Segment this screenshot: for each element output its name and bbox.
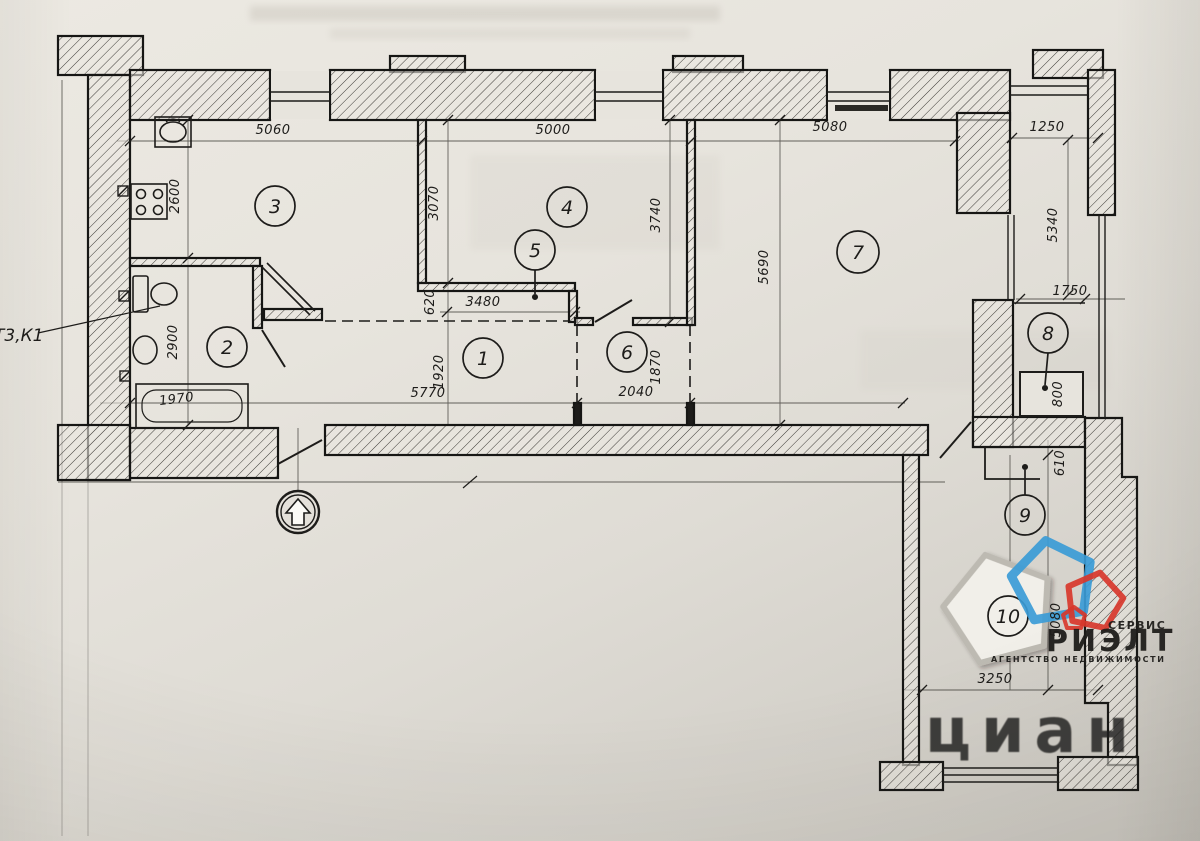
bathroom-door [262,330,285,367]
dim-bath-height: 2900 [166,324,181,359]
room-number: 10 [996,606,1020,628]
doors [262,300,971,488]
room-number: 5 [529,240,541,262]
dim-kitchen-top: 5060 [255,123,290,138]
room-label-6: 6 [607,332,647,372]
entry-arrow [277,491,319,533]
agency-logo: 10 СЕРВИС РИЭЛТ АГЕНТСТВО НЕДВИЖИМОСТИ [933,534,1175,669]
room6-door [595,300,632,322]
dim-hall-width: 5770 [410,386,445,401]
room-number: 2 [221,337,233,359]
room-label-7: 7 [837,231,879,273]
up-arrow-icon [286,499,310,525]
room-label-2: 2 [207,327,247,367]
stove [131,184,167,219]
room-number: 1 [477,348,489,370]
dim-kitchen-left: 2600 [168,178,183,213]
dim-room10-width: 3250 [977,672,1012,687]
dim-loggia-top: 1250 [1029,120,1064,135]
wash-basin [133,336,157,364]
room-number: 8 [1042,323,1054,345]
dim-room7-left: 5690 [757,249,772,284]
fixtures [118,117,248,428]
room-label-9: 9 [1005,465,1045,535]
room-label-3: 3 [255,186,295,226]
dim-niche-depth: 620 [423,289,438,315]
wall-mark-text: Т3,К1 [0,326,44,346]
room-number: 6 [621,342,633,364]
dim-room4-right: 3740 [649,197,664,232]
room-number: 3 [269,196,281,218]
logo-tagline-text: АГЕНТСТВО НЕДВИЖИМОСТИ [991,655,1166,664]
dim-bathtub: 1970 [158,390,195,409]
logo-brand-text: РИЭЛТ [1046,624,1176,659]
dim-room10-height: 5080 [1049,602,1064,637]
wing-door [940,422,971,458]
floor-plan-svg: циан 3 4 5 7 2 1 6 8 9 Т3,К1 10 [0,0,1200,841]
dim-hall-height: 1920 [432,354,447,389]
walls [58,36,1138,790]
room-label-1: 1 [463,338,503,378]
dim-niche-width: 3480 [465,295,500,310]
dim-loggia-right: 5340 [1046,207,1061,242]
dim-room6-width: 2040 [618,385,653,400]
scanned-floor-plan: циан 3 4 5 7 2 1 6 8 9 Т3,К1 10 [0,0,1200,841]
dim-room9-depth: 610 [1053,450,1068,476]
room-number: 4 [561,197,573,219]
room-number: 9 [1019,505,1031,527]
dim-room7-top: 5080 [812,120,847,135]
dashed-partitions [325,321,690,425]
watermark-cian: циан [925,694,1139,767]
entry-door [278,440,322,464]
room-number: 7 [852,242,864,264]
dim-room8-width: 1750 [1052,284,1087,299]
balcony-threshold [835,105,888,111]
dim-room6-height: 1870 [649,349,664,384]
dim-room4-left: 3070 [427,185,442,220]
logo-pentagon-gray [933,541,1064,668]
dim-room8-depth: 800 [1051,381,1066,407]
dim-room4-top: 5000 [535,123,570,138]
